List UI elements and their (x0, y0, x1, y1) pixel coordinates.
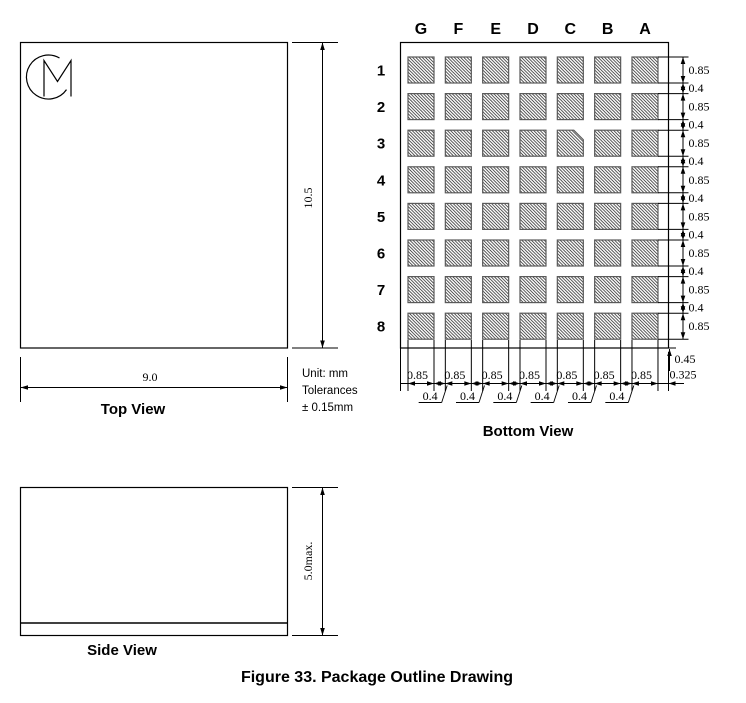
pad-C5 (557, 203, 583, 229)
pad-G2 (408, 94, 434, 120)
dimension-arrow (280, 385, 288, 390)
side-view-label: Side View (87, 642, 157, 659)
pad-C2 (557, 94, 583, 120)
pad-width-dim-label: 0.85 (631, 368, 652, 382)
row-gap-dim-label: 0.4 (689, 264, 704, 278)
dimension-arrow (681, 296, 686, 303)
pad-G7 (408, 277, 434, 303)
pad-height-dim-label: 0.85 (689, 209, 710, 223)
row-label: 6 (377, 246, 385, 263)
pad-A8 (632, 313, 658, 339)
pad-F7 (445, 277, 471, 303)
pad-A2 (632, 94, 658, 120)
dimension-arrow (681, 222, 686, 229)
dimension-arrow (576, 381, 583, 386)
dimension-arrow (681, 130, 686, 137)
column-label: A (639, 21, 651, 38)
row-gap-dim-label: 0.4 (689, 154, 704, 168)
pad-E1 (483, 57, 509, 83)
row-label: 8 (377, 319, 385, 336)
column-label: G (415, 21, 427, 38)
column-label: F (453, 21, 463, 38)
row-gap-dim-label: 0.4 (689, 191, 704, 205)
col-gap-dim-label: 0.4 (497, 389, 512, 403)
pad-C8 (557, 313, 583, 339)
dimension-arrow (681, 240, 686, 247)
side-view: 5.0max. Side View (21, 488, 339, 660)
pad-B8 (595, 313, 621, 339)
pad-C7 (557, 277, 583, 303)
dimension-arrow (681, 313, 686, 320)
pad-B5 (595, 203, 621, 229)
pad-F6 (445, 240, 471, 266)
pad-G6 (408, 240, 434, 266)
pad-G5 (408, 203, 434, 229)
pad-A6 (632, 240, 658, 266)
row-label: 2 (377, 99, 385, 116)
side-view-height-dim-label: 5.0max. (301, 542, 315, 581)
pad-A1 (632, 57, 658, 83)
leader-line (442, 386, 448, 403)
pad-E2 (483, 94, 509, 120)
dimension-arrow (320, 628, 325, 636)
col-gap-dim-label: 0.4 (535, 389, 550, 403)
dimension-arrow (320, 341, 325, 349)
column-label: E (490, 21, 501, 38)
pad-height-dim-label: 0.85 (689, 173, 710, 187)
pad-D1 (520, 57, 546, 83)
pad-E6 (483, 240, 509, 266)
pad-F4 (445, 167, 471, 193)
pad-width-dim-label: 0.85 (556, 368, 577, 382)
pad-C3-chamfered (557, 130, 583, 156)
dimension-arrow (681, 270, 686, 277)
pad-B1 (595, 57, 621, 83)
row-gap-dim-label: 0.4 (689, 81, 704, 95)
side-view-height-dimension (292, 488, 338, 636)
pad-E8 (483, 313, 509, 339)
pad-E3 (483, 130, 509, 156)
dimension-arrow (681, 233, 686, 240)
pad-F5 (445, 203, 471, 229)
row-label: 5 (377, 209, 385, 226)
pad-D4 (520, 167, 546, 193)
dimension-arrow (667, 349, 672, 356)
top-view-outline (21, 43, 288, 349)
dimension-arrow (464, 381, 471, 386)
dimension-arrow (681, 76, 686, 83)
column-label: D (527, 21, 539, 38)
tolerances-note-line: Tolerances (302, 385, 358, 397)
pad-A3 (632, 130, 658, 156)
dimension-arrow (320, 43, 325, 51)
row-gap-dim-label: 0.4 (689, 118, 704, 132)
col-gap-dim-label: 0.4 (460, 389, 475, 403)
bottom-view: GFEDCBA123456780.850.40.850.40.850.40.85… (377, 21, 710, 440)
dimension-arrow (681, 186, 686, 193)
pad-F1 (445, 57, 471, 83)
dimension-arrow (681, 259, 686, 266)
pad-E7 (483, 277, 509, 303)
pad-G1 (408, 57, 434, 83)
dimension-arrow (681, 149, 686, 156)
pad-G3 (408, 130, 434, 156)
pad-B4 (595, 167, 621, 193)
pad-B2 (595, 94, 621, 120)
col-gap-dim-label: 0.4 (609, 389, 624, 403)
pad-G4 (408, 167, 434, 193)
pad-height-dim-label: 0.85 (689, 63, 710, 77)
dimension-arrow (539, 381, 546, 386)
pad-F2 (445, 94, 471, 120)
row-gap-dim-label: 0.4 (689, 227, 704, 241)
units-note: Unit: mm Tolerances ± 0.15mm (302, 368, 358, 414)
dimension-arrow (502, 381, 509, 386)
row-label: 3 (377, 136, 385, 153)
bottom-margin-dim-label: 0.45 (675, 352, 696, 366)
leader-line (479, 386, 485, 403)
pad-height-dim-label: 0.85 (689, 319, 710, 333)
dimension-arrow (669, 381, 676, 386)
pad-E5 (483, 203, 509, 229)
tolerance-value-note-line: ± 0.15mm (302, 402, 353, 414)
pad-F8 (445, 313, 471, 339)
pad-B3 (595, 130, 621, 156)
pad-D7 (520, 277, 546, 303)
pad-G8 (408, 313, 434, 339)
top-view-label: Top View (101, 401, 166, 418)
dimension-arrow (681, 87, 686, 94)
leader-line (591, 386, 597, 403)
side-margin-dim-label: 0.325 (670, 368, 697, 382)
col-gap-dim-label: 0.4 (572, 389, 587, 403)
dimension-arrow (681, 277, 686, 284)
pad-width-dim-label: 0.85 (482, 368, 503, 382)
pad-width-dim-label: 0.85 (407, 368, 428, 382)
dimension-arrow (681, 57, 686, 64)
pad-B6 (595, 240, 621, 266)
pad-height-dim-label: 0.85 (689, 283, 710, 297)
column-label: C (565, 21, 577, 38)
pad-height-dim-label: 0.85 (689, 136, 710, 150)
pad-A5 (632, 203, 658, 229)
row-label: 7 (377, 282, 385, 299)
pad-D6 (520, 240, 546, 266)
leader-line (554, 386, 560, 403)
pad-D2 (520, 94, 546, 120)
pad-A7 (632, 277, 658, 303)
dimension-arrow (681, 203, 686, 210)
pad-C6 (557, 240, 583, 266)
top-view-height-dimension (292, 43, 338, 349)
pad-height-dim-label: 0.85 (689, 100, 710, 114)
pad-C1 (557, 57, 583, 83)
bottom-view-label: Bottom View (483, 423, 574, 440)
dimension-arrow (320, 488, 325, 496)
dimension-arrow (681, 196, 686, 203)
top-view-width-dim-label: 9.0 (143, 370, 158, 384)
dimension-arrow (681, 123, 686, 130)
pad-B7 (595, 277, 621, 303)
dimension-arrow (681, 94, 686, 101)
row-label: 1 (377, 63, 385, 80)
dimension-arrow (681, 160, 686, 167)
leader-line (516, 386, 522, 403)
cm-logo-icon (26, 55, 71, 99)
dimension-arrow (681, 113, 686, 120)
dimension-arrow (21, 385, 29, 390)
pad-A4 (632, 167, 658, 193)
pad-D8 (520, 313, 546, 339)
pad-F3 (445, 130, 471, 156)
dimension-arrow (427, 381, 434, 386)
row-label: 4 (377, 172, 386, 189)
pad-D5 (520, 203, 546, 229)
top-view: 10.5 9.0 Top View (21, 43, 339, 419)
row-gap-dim-label: 0.4 (689, 301, 704, 315)
side-view-outline (21, 488, 288, 636)
dimension-arrow (681, 167, 686, 174)
dimension-arrow (651, 381, 658, 386)
figure-caption: Figure 33. Package Outline Drawing (241, 669, 513, 686)
pad-D3 (520, 130, 546, 156)
leader-line (628, 386, 634, 403)
col-gap-dim-label: 0.4 (423, 389, 438, 403)
dimension-arrow (681, 306, 686, 313)
dimension-arrow (681, 332, 686, 339)
pad-height-dim-label: 0.85 (689, 246, 710, 260)
column-label: B (602, 21, 614, 38)
dimension-arrow (614, 381, 621, 386)
pad-width-dim-label: 0.85 (519, 368, 540, 382)
pad-C4 (557, 167, 583, 193)
package-outline-drawing: 10.5 9.0 Top View Unit: mm Tolerances ± … (0, 0, 746, 703)
unit-note-line: Unit: mm (302, 368, 348, 380)
pad-width-dim-label: 0.85 (594, 368, 615, 382)
pad-E4 (483, 167, 509, 193)
pad-width-dim-label: 0.85 (444, 368, 465, 382)
top-view-height-dim-label: 10.5 (301, 188, 315, 209)
